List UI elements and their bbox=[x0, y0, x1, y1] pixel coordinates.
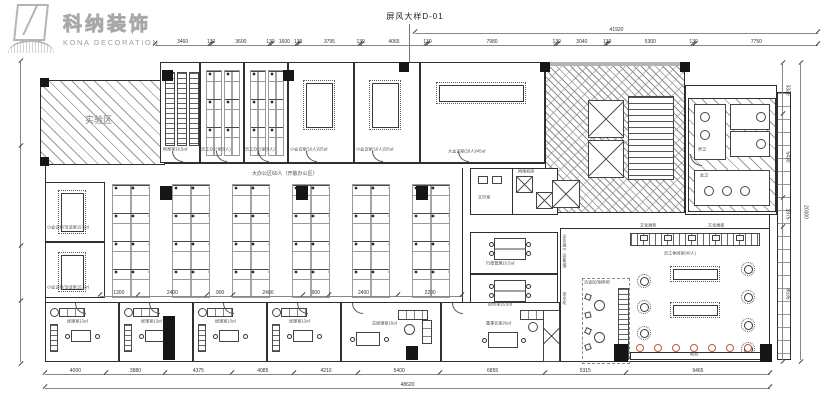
room-label: 财务室16.5㎡ bbox=[488, 303, 512, 308]
stairs-icon bbox=[628, 96, 674, 180]
dim-value: 9465 bbox=[692, 368, 703, 374]
partition-wall bbox=[512, 168, 513, 215]
workstation-column bbox=[352, 184, 390, 298]
column-pillar bbox=[160, 186, 172, 200]
dining-table bbox=[670, 302, 720, 318]
toilet-icon bbox=[756, 112, 766, 122]
archive-shelf bbox=[165, 72, 175, 146]
appliance-icon bbox=[712, 235, 720, 241]
appliance-icon bbox=[688, 235, 696, 241]
workstation-column bbox=[232, 184, 270, 298]
dim-value: 6855 bbox=[487, 368, 498, 374]
shaft-icon bbox=[543, 310, 560, 362]
room-label: 文印室 bbox=[478, 196, 490, 201]
copier-icon bbox=[478, 176, 488, 184]
cafe-table bbox=[594, 332, 605, 343]
dim-value: 1300 bbox=[113, 290, 124, 296]
dim-value: 3600 bbox=[235, 39, 246, 45]
dim-value: 3320 bbox=[785, 84, 791, 95]
dim-value: 4375 bbox=[193, 368, 204, 374]
room-label: 总经理室18㎡ bbox=[372, 322, 397, 327]
round-table bbox=[741, 262, 755, 276]
room-label: 经理室13㎡ bbox=[67, 320, 88, 325]
logo-chinese: 科纳装饰 bbox=[63, 9, 159, 36]
dim-bottom-segments: 4000 3880 4375 4085 4210 5400 6855 5315 … bbox=[45, 374, 770, 381]
dim-value: 4065 bbox=[388, 39, 399, 45]
toilet-icon bbox=[740, 186, 750, 196]
room-label: 小会议室/洽谈室15.5㎡ bbox=[47, 286, 89, 291]
dim-value: 2400 bbox=[262, 290, 273, 296]
server-rack-icon bbox=[536, 192, 553, 209]
room-conference bbox=[420, 62, 545, 163]
dim-value: 2200 bbox=[425, 290, 436, 296]
logo-text: 科纳装饰 KONA DECORATION bbox=[63, 9, 159, 47]
room-label: 企业展示（形象墙） bbox=[561, 234, 566, 271]
toilet-icon bbox=[722, 186, 732, 196]
kona-logo-icon bbox=[8, 3, 54, 53]
toilet-icon bbox=[704, 186, 714, 196]
copier-icon bbox=[492, 176, 502, 184]
column-pillar bbox=[760, 344, 772, 362]
column-pillar bbox=[406, 346, 418, 360]
room-label: 行政管理16.5㎡ bbox=[486, 262, 514, 267]
desk-cluster bbox=[494, 238, 526, 260]
column-pillar bbox=[162, 70, 173, 81]
dim-value: 3460 bbox=[177, 39, 188, 45]
room-label: 经理室13㎡ bbox=[215, 320, 236, 325]
room-label: 大办公区60人（开敞办公区） bbox=[252, 172, 318, 178]
drawing-title: 屏风大样D-01 bbox=[360, 11, 470, 22]
dim-value: 7750 bbox=[751, 39, 762, 45]
dim-office-inner: 1300 2400 900 2400 900 2400 2200 bbox=[100, 296, 462, 303]
dim-value: 2400 bbox=[358, 290, 369, 296]
column-pillar bbox=[540, 62, 550, 72]
room-label: 经理室13㎡ bbox=[141, 320, 162, 325]
dim-value: 1600 bbox=[279, 39, 290, 45]
column-pillar bbox=[680, 62, 690, 72]
appliance-icon bbox=[640, 235, 648, 241]
dim-top-segments: 3460 130 3600 130 1600 130 3795 130 4065… bbox=[155, 45, 818, 52]
column-pillar bbox=[40, 78, 49, 87]
column-pillar bbox=[40, 157, 49, 166]
dim-value: 2400 bbox=[167, 290, 178, 296]
dim-value: 41920 bbox=[610, 27, 624, 33]
dim-value: 4210 bbox=[320, 368, 331, 374]
dim-left-ticks bbox=[20, 62, 27, 362]
appliance-icon bbox=[664, 235, 672, 241]
dim-value: 3795 bbox=[324, 39, 335, 45]
elevator-icon bbox=[588, 140, 624, 178]
dim-value: 4000 bbox=[70, 368, 81, 374]
dim-value: 5400 bbox=[394, 368, 405, 374]
dim-value: 3040 bbox=[576, 39, 587, 45]
room-label: 洽谈区/咖啡吧 bbox=[584, 281, 610, 286]
column-pillar bbox=[296, 186, 308, 200]
workstation-column bbox=[112, 184, 150, 298]
cafe-table bbox=[594, 300, 605, 311]
room-label: 员工休闲室(40人) bbox=[664, 252, 696, 257]
room-label: 男卫 bbox=[698, 148, 706, 153]
round-table bbox=[637, 326, 651, 340]
workstation-column bbox=[224, 70, 240, 156]
dim-value: 48620 bbox=[401, 382, 415, 388]
dim-value: 8535 bbox=[785, 289, 791, 300]
dim-value: 900 bbox=[312, 290, 320, 296]
column-pillar bbox=[614, 344, 628, 362]
meeting-table bbox=[369, 80, 401, 130]
room-label: 经理室13㎡ bbox=[289, 320, 310, 325]
desk-cluster bbox=[494, 280, 526, 302]
dim-value: 1875 bbox=[785, 208, 791, 219]
room-label: 文化展柜 bbox=[640, 224, 656, 229]
workstation-column bbox=[292, 184, 330, 298]
conference-table bbox=[436, 82, 526, 104]
elevator-icon bbox=[588, 100, 624, 138]
workstation-column bbox=[268, 70, 284, 156]
room-label: 董事长室26㎡ bbox=[486, 322, 511, 327]
corridor-wall bbox=[462, 168, 463, 302]
round-table bbox=[741, 318, 755, 332]
dim-value: 5300 bbox=[645, 39, 656, 45]
room-label: 网络机房 bbox=[518, 170, 534, 175]
dim-value: 5430 bbox=[785, 152, 791, 163]
meeting-table bbox=[303, 80, 335, 130]
appliance-icon bbox=[736, 235, 744, 241]
room-label: 实验区 bbox=[85, 115, 112, 125]
column-pillar bbox=[163, 316, 175, 360]
room-label: 女卫 bbox=[700, 174, 708, 179]
dim-value: 7980 bbox=[486, 39, 497, 45]
workstation-column bbox=[172, 184, 210, 298]
archive-shelf bbox=[189, 72, 199, 146]
dim-bottom-overall: 48620 bbox=[45, 388, 770, 395]
room-label: 吧台 bbox=[690, 353, 698, 358]
round-table bbox=[741, 290, 755, 304]
room-label: 小会议室/洽谈室15.5㎡ bbox=[47, 226, 89, 231]
logo: 科纳装饰 KONA DECORATION bbox=[8, 3, 159, 53]
round-table bbox=[637, 300, 651, 314]
urinal-icon bbox=[700, 112, 710, 122]
column-pillar bbox=[399, 62, 409, 72]
toilet-icon bbox=[756, 139, 766, 149]
room-label: 茶水柜 bbox=[561, 292, 566, 304]
room-label: 文化展板 bbox=[708, 224, 724, 229]
logo-english: KONA DECORATION bbox=[63, 38, 159, 47]
dim-value: 5315 bbox=[580, 368, 591, 374]
dim-right-overall: 20300 bbox=[800, 64, 807, 360]
archive-shelf bbox=[177, 72, 187, 146]
column-pillar bbox=[283, 70, 294, 81]
workstation-column bbox=[250, 70, 266, 156]
workstation-column bbox=[206, 70, 222, 156]
dining-table bbox=[670, 266, 720, 282]
dim-value: 20300 bbox=[803, 205, 809, 219]
urinal-icon bbox=[700, 130, 710, 140]
shaft-icon bbox=[552, 180, 580, 208]
floorplan-canvas: 科纳装饰 KONA DECORATION 屏风大样D-01 41920 3460… bbox=[0, 0, 830, 418]
server-rack-icon bbox=[516, 176, 533, 193]
dim-right-segments: 3320 5430 1875 8535 bbox=[782, 64, 789, 360]
dim-value: 900 bbox=[216, 290, 224, 296]
column-pillar bbox=[416, 186, 428, 200]
round-table bbox=[637, 274, 651, 288]
workstation-column bbox=[412, 184, 450, 298]
dim-value: 4085 bbox=[257, 368, 268, 374]
dim-value: 3880 bbox=[130, 368, 141, 374]
